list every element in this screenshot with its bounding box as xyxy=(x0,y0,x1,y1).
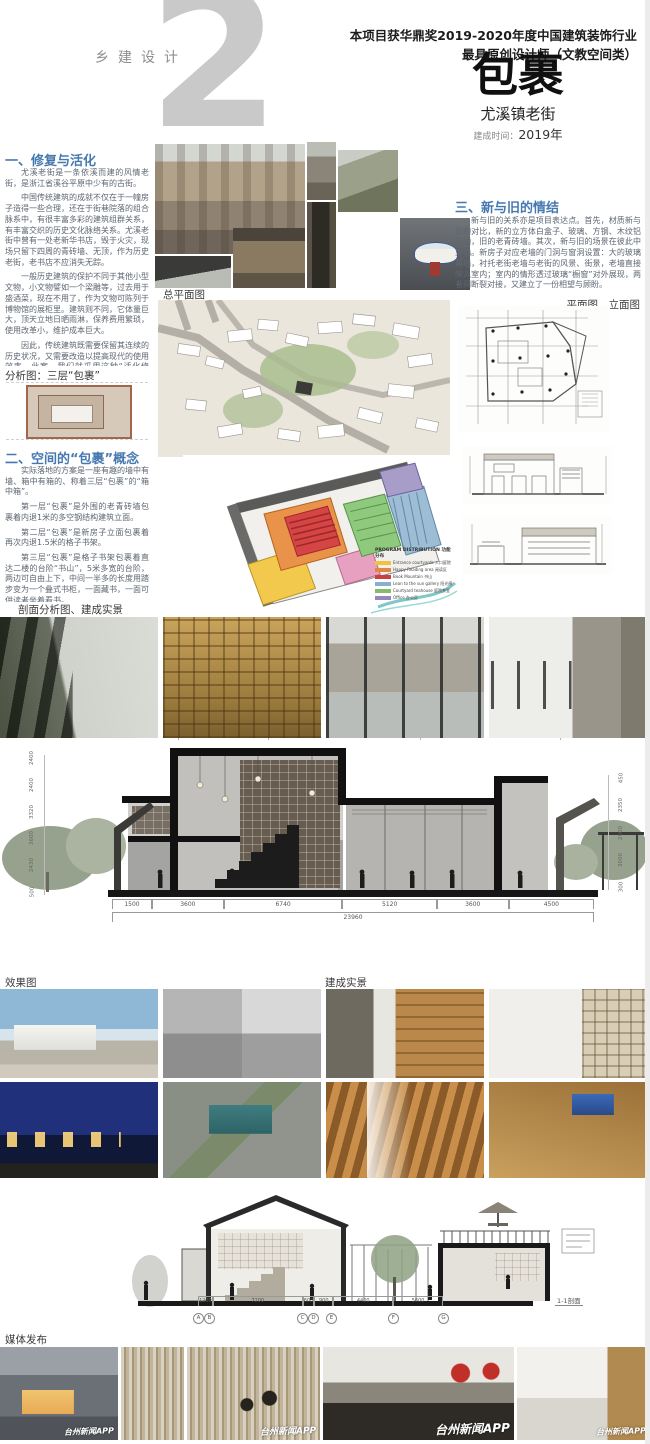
photo-ruin-vegetation xyxy=(338,150,398,212)
grid-bubble: F xyxy=(388,1313,399,1324)
grid-bubble: C xyxy=(297,1313,308,1324)
elevation-drawing-2 xyxy=(462,516,612,574)
built-label: 建成实景 xyxy=(325,975,367,990)
dimension: 2400 xyxy=(29,751,35,765)
analysis-diagram xyxy=(6,382,148,440)
dimension: 1500 xyxy=(112,899,152,909)
legend-swatch xyxy=(375,596,391,599)
main-section-svg xyxy=(0,740,650,960)
legend-swatch xyxy=(375,589,391,592)
photo-white-corridor-shelf xyxy=(489,989,650,1078)
photo-alley-new-old xyxy=(489,617,650,738)
legend-label: Lean to the sun gallery 阳光廊 xyxy=(393,581,452,587)
section2-heading: 二、空间的“包裹”概念 xyxy=(5,448,139,467)
paragraph: 新与旧的关系亦是项目表达点。首先，材质新与旧的对比，新的立方体白盒子、玻璃、方钢… xyxy=(455,216,641,291)
photo-glass-wall xyxy=(326,617,484,738)
diagram-guide-line xyxy=(6,439,148,440)
photo-glass-corridor xyxy=(326,989,484,1078)
dimension: 300 xyxy=(618,882,624,893)
program-legend-title: PROGRAM DISTRIBUTION 功能分布 xyxy=(375,547,455,559)
secondary-section-svg xyxy=(0,1183,650,1335)
render-label: 效果图 xyxy=(5,975,37,990)
legend-item: Happy Reading area 阅读区 xyxy=(375,567,455,573)
photo-book-hall xyxy=(163,617,321,738)
legend-item: Book Mountain 书山 xyxy=(375,574,455,580)
photo-media-bookshelf xyxy=(121,1347,184,1440)
paragraph: 一般历史建筑的保护不同于其他小型文物，小文物譬如一个梁雕等，过去用于盛酒菜，现在… xyxy=(5,272,149,336)
dimension: 4400 xyxy=(333,1296,393,1306)
bottom-dimension-chain: 1500 3600 6740 5120 3600 4500 xyxy=(112,899,594,909)
dimension: 4500 xyxy=(509,899,594,909)
paragraph: 第二层“包裹”是新房子立面包裹着再次内退1.5米的格子书架。 xyxy=(5,528,149,549)
section3-body: 新与旧的关系亦是项目表达点。首先，材质新与旧的对比，新的立方体白盒子、玻璃、方钢… xyxy=(455,216,641,296)
presentation-board: 乡建设计 2 本项目获华鼎奖2019-2020年度中国建筑装饰行业 最具原创设计… xyxy=(0,0,650,1444)
built-time-label: 建成时间： xyxy=(473,132,518,142)
wrap-layer-middle xyxy=(38,395,104,429)
elevation-drawing-1 xyxy=(462,446,612,504)
section-ref-label: 1-1剖面 xyxy=(555,1295,583,1306)
project-title: 包裹 xyxy=(448,50,588,101)
legend-label: Happy Reading area 阅读区 xyxy=(393,567,447,573)
dimension: 3320 xyxy=(29,805,35,819)
photo-old-ruin-vertical xyxy=(307,142,336,200)
site-plan-drawing xyxy=(158,300,450,457)
dimension: 5600 xyxy=(393,1296,443,1306)
left-dimension-column: 2400 2400 3320 3600 2430 500 xyxy=(20,755,45,895)
section-row-label: 剖面分析图、建成实景 xyxy=(18,602,123,617)
photo-model-collage xyxy=(163,989,321,1078)
grid-bubble: A xyxy=(193,1313,204,1324)
paragraph: 实际落地的方案是一座有趣的墙中有墙、箱中有箱的、称着三层“包裹”的“箱中箱”。 xyxy=(5,466,149,498)
bowl-foot-shape xyxy=(430,262,440,276)
elevation1-svg xyxy=(462,446,612,504)
main-section-drawing: 1500 3600 6740 5120 3600 4500 23960 2400… xyxy=(0,740,650,960)
photo-wood-louver-skylight xyxy=(326,1082,484,1178)
dimension: 3600 xyxy=(29,831,35,845)
photo-media-conference: 台州新闻APP xyxy=(323,1347,514,1440)
built-time: 建成时间：2019年 xyxy=(438,124,598,143)
site-plan-svg xyxy=(158,300,450,457)
dimension: 500 xyxy=(29,887,35,898)
grid-bubble: D xyxy=(308,1313,319,1324)
paragraph: 因此，传统建筑既需要保留其连续的历史状况，又需要改造以提高现代的使用效率。此案，… xyxy=(5,341,149,366)
legend-label: Book Mountain 书山 xyxy=(393,574,432,580)
photo-media-window-reading: 台州新闻APP xyxy=(517,1347,650,1440)
photo-aerial-roof xyxy=(163,1082,321,1178)
dimension: 2400 xyxy=(29,778,35,792)
legend-swatch xyxy=(375,582,391,585)
dimension: 3600 xyxy=(152,899,224,909)
dimension: 1200 xyxy=(198,1296,213,1306)
section3-heading: 三、新与旧的情结 xyxy=(455,197,559,216)
total-dimension: 23960 xyxy=(112,912,594,922)
floor-plan-drawing xyxy=(458,306,610,432)
built-time-value: 2019年 xyxy=(518,127,562,142)
paragraph: 第一层“包裹”是外围的老青砖墙包裹着内退1米的多空钢结构建筑立面。 xyxy=(5,502,149,523)
dimension: 900 xyxy=(314,1296,333,1306)
photo-old-doorway xyxy=(307,202,336,288)
watermark: 台州新闻APP xyxy=(64,1425,114,1438)
legend-swatch xyxy=(375,575,391,578)
legend-label: Courtyard teahouse 庭院茶室 xyxy=(393,588,450,594)
dimension: 3600 xyxy=(437,899,509,909)
photo-render-street xyxy=(0,989,158,1078)
elevation2-svg xyxy=(462,516,612,574)
photo-media-exterior-dusk: 台州新闻APP xyxy=(0,1347,118,1440)
dimension: 7200 xyxy=(213,1296,303,1306)
photo-roof-eaves xyxy=(155,256,231,288)
dimension: 2000 xyxy=(618,826,624,840)
dimension: 450 xyxy=(618,773,624,784)
project-subtitle: 尤溪镇老街 xyxy=(448,103,588,124)
section2-dimension-chain: 1200 7200 600 900 4400 5600 xyxy=(198,1296,443,1306)
legend-swatch xyxy=(375,561,391,564)
watermark: 台州新闻APP xyxy=(596,1425,646,1438)
dimension: 600 xyxy=(303,1296,315,1306)
watermark: 台州新闻APP xyxy=(435,1419,510,1439)
section2-body: 实际落地的方案是一座有趣的墙中有墙、箱中有箱的、称着三层“包裹”的“箱中箱”。 … xyxy=(5,466,149,602)
section1-body: 尤溪老街是一条依溪而建的风情老街，是浙江省溪谷平原中少有的古街。 中国传统建筑的… xyxy=(5,168,149,366)
legend-item: Office 办公区 xyxy=(375,595,455,601)
legend-item: Courtyard teahouse 庭院茶室 xyxy=(375,588,455,594)
legend-item: Lean to the sun gallery 阳光廊 xyxy=(375,581,455,587)
grid-bubble: E xyxy=(326,1313,337,1324)
legend-label: Entrance courtyards 入口庭院 xyxy=(393,560,451,566)
photo-courtyard xyxy=(233,228,305,288)
axonometric-program-diagram: PROGRAM DISTRIBUTION 功能分布 Entrance court… xyxy=(183,455,460,620)
dimension: 6740 xyxy=(224,899,343,909)
photo-night-render xyxy=(0,1082,158,1178)
photo-book-mountain-people xyxy=(489,1082,650,1178)
wrap-layer-outer xyxy=(26,385,132,439)
watermark: 台州新闻APP xyxy=(260,1423,317,1438)
paragraph: 第三层“包裹”是格子书架包裹着直达二楼的台阶“书山”，5米多宽的台阶，两边可自由… xyxy=(5,553,149,602)
dimension: 2350 xyxy=(618,798,624,812)
section1-heading: 一、修复与活化 xyxy=(5,150,96,169)
grid-bubble: B xyxy=(204,1313,215,1324)
legend-label: Office 办公区 xyxy=(393,595,418,601)
right-dimension-column: 450 2350 2000 3600 300 xyxy=(608,775,633,890)
dimension: 5120 xyxy=(342,899,436,909)
diagram-guide-line xyxy=(6,382,148,383)
floor-plan-svg xyxy=(458,306,610,432)
media-label: 媒体发布 xyxy=(5,1332,47,1347)
paragraph: 中国传统建筑的成就不仅在于一幢房子造得一些合理，还在于街巷院落的组合脉系中，有很… xyxy=(5,193,149,268)
dimension: 2430 xyxy=(29,858,35,872)
analysis-diagram-label: 分析图：三层“包裹” xyxy=(5,368,100,383)
bowl-shape xyxy=(414,242,458,264)
dimension: 3600 xyxy=(618,853,624,867)
photo-media-bookshelf-people: 台州新闻APP xyxy=(187,1347,320,1440)
legend-swatch xyxy=(375,568,391,571)
wrap-layer-inner xyxy=(51,405,93,423)
paragraph: 尤溪老街是一条依溪而建的风情老街，是浙江省溪谷平原中少有的古街。 xyxy=(5,168,149,189)
program-legend: PROGRAM DISTRIBUTION 功能分布 Entrance court… xyxy=(375,547,455,602)
award-line-1: 本项目获华鼎奖2019-2020年度中国建筑装饰行业 xyxy=(307,27,637,46)
board-number: 2 xyxy=(148,0,280,156)
secondary-section-drawing: 1200 7200 600 900 4400 5600 A B C D E F … xyxy=(0,1183,650,1335)
legend-item: Entrance courtyards 入口庭院 xyxy=(375,560,455,566)
grid-bubble: G xyxy=(438,1313,449,1324)
photo-gallery-corridor xyxy=(0,617,158,738)
